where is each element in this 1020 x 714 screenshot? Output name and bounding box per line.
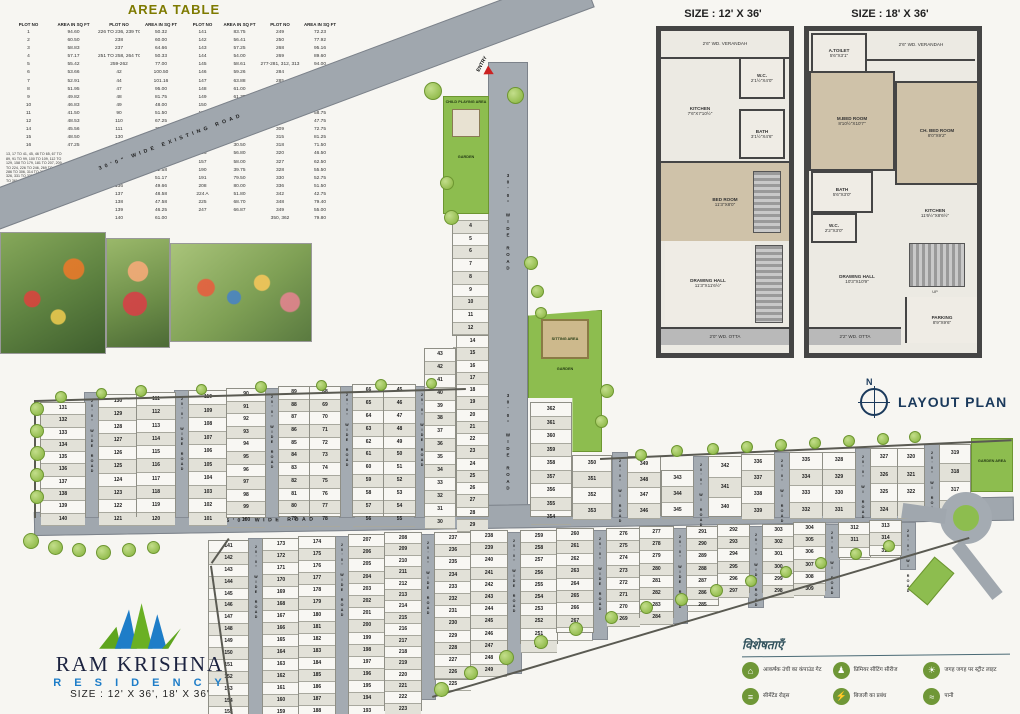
tree-icon — [30, 424, 44, 438]
plot-318: 318 — [940, 464, 970, 483]
road-label: 20'0" WIDE ROAD — [512, 539, 516, 614]
tree-icon — [426, 378, 437, 389]
plot-237: 237 — [435, 533, 471, 545]
plot-165: 165 — [263, 635, 299, 647]
plot-217: 217 — [385, 636, 421, 647]
plot-206: 206 — [349, 547, 385, 559]
plot-180: 180 — [299, 610, 335, 622]
plot-337: 337 — [742, 471, 774, 487]
plot-17: 17 — [457, 373, 488, 385]
plot-5: 5 — [453, 234, 488, 247]
legend-item-label: प्रिमियर सीटिंग सीरीज — [854, 667, 898, 673]
tree-icon — [424, 82, 442, 100]
plot-354: 354 — [531, 511, 571, 525]
plot-214: 214 — [385, 601, 421, 612]
road-label: 20'0" WI ROAD — [618, 459, 622, 524]
plot-19: 19 — [457, 397, 488, 409]
plot-7: 7 — [453, 259, 488, 272]
plot-305: 305 — [794, 535, 825, 547]
plot-74: 74 — [310, 463, 340, 476]
plot-345: 345 — [662, 503, 693, 519]
garden-label: GARDEN — [529, 367, 601, 372]
tree-icon — [850, 548, 862, 560]
plot-201: 201 — [349, 608, 385, 620]
plot-101: 101 — [189, 513, 227, 527]
plot-77: 77 — [310, 501, 340, 514]
plot-column: 238239240241242243244245246247248249 — [470, 530, 508, 666]
child-playing-area: CHILD PLAYING AREAGARDEN — [443, 96, 489, 214]
layout-brochure: AREA TABLE PLOT NOAREA IN SQ FT194.60260… — [0, 0, 1020, 714]
plot-51: 51 — [384, 462, 415, 475]
cross-road: 20'0" WI ROAD — [900, 522, 916, 570]
tree-icon — [635, 449, 647, 461]
plot-column: 2082092102112122132142152162172182192202… — [384, 532, 422, 711]
plot-24: 24 — [457, 459, 488, 471]
tree-icon — [464, 666, 478, 680]
cross-road: 20'0" WI ROAD — [693, 456, 709, 518]
plot-229: 229 — [435, 631, 471, 643]
legend-item: ☀जगह जगह पर स्ट्रीट लाइट — [923, 662, 1010, 679]
plot-188: 188 — [299, 706, 335, 714]
tree-icon — [809, 437, 821, 449]
plot-32: 32 — [425, 491, 455, 504]
plot-173: 173 — [263, 539, 299, 551]
plot-47: 47 — [384, 411, 415, 424]
plot-253: 253 — [521, 604, 557, 616]
tree-icon — [675, 593, 688, 606]
tree-icon — [440, 176, 454, 190]
plot-106: 106 — [189, 445, 227, 459]
plot-94: 94 — [227, 439, 265, 452]
plot-279: 279 — [640, 551, 673, 563]
plot-column: 130129128127126125124123122121 — [98, 394, 138, 517]
brand-block: RAM KRISHNA R E S I D E N C Y SIZE : 12'… — [40, 600, 240, 700]
plot-169: 169 — [263, 587, 299, 599]
plot-209: 209 — [385, 544, 421, 555]
tree-icon — [135, 385, 147, 397]
plot-58: 58 — [353, 488, 384, 501]
plot-column: 6665646362616059585756 — [352, 384, 385, 517]
plot-column: 111112113114115116117118119120 — [136, 392, 176, 517]
plot-128: 128 — [99, 421, 137, 434]
plot-97: 97 — [227, 477, 265, 490]
plot-6: 6 — [453, 246, 488, 259]
plot-185: 185 — [299, 670, 335, 682]
legend-item-label: पानी — [944, 693, 953, 699]
plot-325: 325 — [871, 484, 897, 502]
tree-icon — [909, 431, 921, 443]
plot-20: 20 — [457, 410, 488, 422]
plot-222: 222 — [385, 692, 421, 703]
tree-icon — [535, 307, 547, 319]
plot-99: 99 — [227, 502, 265, 515]
plot-25: 25 — [457, 471, 488, 483]
road-label: 20'0" WI ROAD — [780, 459, 784, 524]
tree-icon — [122, 543, 136, 557]
tree-icon — [600, 384, 614, 398]
plot-231: 231 — [435, 606, 471, 618]
plot-63: 63 — [353, 424, 384, 437]
brand-name: RAM KRISHNA — [40, 652, 240, 677]
plot-302: 302 — [763, 537, 794, 549]
plot-291: 291 — [687, 527, 718, 539]
plot-80: 80 — [279, 501, 309, 514]
plot-352: 352 — [573, 488, 611, 504]
plot-331: 331 — [823, 503, 855, 520]
tree-icon — [605, 611, 618, 624]
plot-344: 344 — [662, 487, 693, 503]
plot-30: 30 — [425, 517, 455, 530]
bench-icon: ♟ — [833, 662, 850, 679]
plot-84: 84 — [279, 450, 309, 463]
plot-52: 52 — [384, 475, 415, 488]
plot-280: 280 — [640, 564, 673, 576]
plot-column: 4546474849505152535455 — [383, 384, 416, 517]
plot-261: 261 — [557, 541, 593, 553]
plot-359: 359 — [531, 444, 571, 458]
plot-108: 108 — [189, 418, 227, 432]
plot-218: 218 — [385, 647, 421, 658]
plot-181: 181 — [299, 622, 335, 634]
tree-icon — [255, 381, 267, 393]
plot-361: 361 — [531, 417, 571, 431]
tree-icon — [72, 543, 86, 557]
legend-item: ⚡बिजली का प्रबंध — [833, 688, 920, 705]
plot-37: 37 — [425, 426, 455, 439]
plot-column: 336337338339 — [741, 454, 775, 517]
plot-141: 141 — [209, 541, 248, 553]
plot-127: 127 — [99, 434, 137, 447]
plot-column: 8988878685848382818079 — [278, 386, 310, 517]
tree-icon — [815, 557, 827, 569]
plot-133: 133 — [41, 428, 85, 440]
plot-87: 87 — [279, 412, 309, 425]
tree-icon — [745, 575, 757, 587]
plot-column: 328329330331 — [822, 452, 856, 516]
plot-256: 256 — [521, 568, 557, 580]
plot-119: 119 — [137, 499, 175, 512]
plot-43: 43 — [425, 349, 455, 362]
road-label: 20'0" WIDE ROAD — [254, 545, 258, 620]
plot-18: 18 — [457, 385, 488, 397]
plot-140: 140 — [41, 514, 85, 526]
plot-46: 46 — [384, 398, 415, 411]
plot-59: 59 — [353, 475, 384, 488]
tree-icon — [96, 545, 111, 560]
plot-330: 330 — [823, 486, 855, 503]
plot-21: 21 — [457, 422, 488, 434]
garden-area-label: GARDEN AREA — [972, 459, 1012, 464]
plot-313: 313 — [870, 521, 901, 533]
tree-icon — [707, 443, 719, 455]
plot-240: 240 — [471, 555, 507, 567]
plot-95: 95 — [227, 452, 265, 465]
plot-208: 208 — [385, 533, 421, 544]
plot-223: 223 — [385, 704, 421, 714]
plot-60: 60 — [353, 462, 384, 475]
plot-193: 193 — [349, 706, 385, 714]
plot-159: 159 — [263, 707, 299, 714]
plot-4: 4 — [453, 221, 488, 234]
plot-228: 228 — [435, 643, 471, 655]
plot-175: 175 — [299, 549, 335, 561]
plot-column: 2072062052042032022012001991981971961951… — [348, 534, 386, 714]
plot-50: 50 — [384, 449, 415, 462]
plot-252: 252 — [521, 616, 557, 628]
plot-205: 205 — [349, 559, 385, 571]
plot-170: 170 — [263, 575, 299, 587]
plot-122: 122 — [99, 500, 137, 513]
plot-62: 62 — [353, 437, 384, 450]
plot-220: 220 — [385, 670, 421, 681]
plot-320: 320 — [898, 449, 924, 467]
streetlight-icon: ☀ — [923, 662, 940, 679]
plot-333: 333 — [790, 486, 822, 503]
tree-icon — [741, 441, 753, 453]
plot-353: 353 — [573, 504, 611, 520]
plot-27: 27 — [457, 495, 488, 507]
plot-360: 360 — [531, 430, 571, 444]
plot-324: 324 — [871, 502, 897, 520]
plot-199: 199 — [349, 633, 385, 645]
cul-de-sac — [940, 492, 992, 544]
road-label: 20'0" WIDE ROAD — [754, 533, 758, 608]
tree-icon — [775, 439, 787, 451]
electricity-icon: ⚡ — [833, 688, 850, 705]
plot-98: 98 — [227, 490, 265, 503]
plot-311: 311 — [839, 535, 870, 547]
plot-329: 329 — [823, 470, 855, 487]
plot-213: 213 — [385, 590, 421, 601]
road-label: 20'0" WIDE ROAD — [180, 397, 184, 472]
legend-item: ♟प्रिमियर सीटिंग सीरीज — [833, 662, 920, 679]
tree-icon — [780, 566, 792, 578]
plot-138: 138 — [41, 489, 85, 501]
plot-38: 38 — [425, 413, 455, 426]
plot-326: 326 — [871, 467, 897, 485]
plot-75: 75 — [310, 476, 340, 489]
plot-16: 16 — [457, 361, 488, 373]
plot-277: 277 — [640, 527, 673, 539]
plot-235: 235 — [435, 557, 471, 569]
plot-289: 289 — [687, 551, 718, 563]
plot-155: 155 — [209, 707, 248, 714]
plot-339: 339 — [742, 504, 774, 520]
tree-icon — [877, 433, 889, 445]
road-label: 20'0" WI ROAD — [861, 455, 865, 520]
plot-233: 233 — [435, 582, 471, 594]
child-playing-label: CHILD PLAYING AREA — [444, 100, 488, 105]
plot-196: 196 — [349, 669, 385, 681]
existing-road-label: 30'0" WIDE EXISTING ROAD — [98, 112, 244, 171]
plot-340: 340 — [709, 498, 741, 519]
plot-271: 271 — [607, 590, 640, 602]
plot-76: 76 — [310, 489, 340, 502]
plot-255: 255 — [521, 580, 557, 592]
plot-26: 26 — [457, 483, 488, 495]
legend: विशेषताएँ ⌂आकर्षक उंची का कंपाउंड गेट♟प्… — [742, 636, 1010, 705]
brand-sizes: SIZE : 12' X 36', 18' X 36' — [40, 689, 240, 700]
plot-327: 327 — [871, 449, 897, 467]
plot-107: 107 — [189, 432, 227, 446]
plot-column: 350351352353 — [572, 455, 612, 517]
tree-icon — [524, 256, 538, 270]
plot-126: 126 — [99, 447, 137, 460]
tree-icon — [375, 379, 387, 391]
legend-item: ≈पानी — [923, 688, 1010, 705]
tree-icon — [534, 635, 548, 649]
plot-198: 198 — [349, 645, 385, 657]
plot-110: 110 — [189, 391, 227, 405]
plot-column: 237236235234233232231230229228227226225 — [434, 532, 472, 680]
plot-239: 239 — [471, 543, 507, 555]
sitting-area-label: SITTING AREA — [552, 337, 579, 342]
plot-263: 263 — [557, 566, 593, 578]
plot-9: 9 — [453, 285, 488, 298]
plot-303: 303 — [763, 525, 794, 537]
plot-114: 114 — [137, 433, 175, 446]
plot-203: 203 — [349, 584, 385, 596]
plot-215: 215 — [385, 613, 421, 624]
plot-336: 336 — [742, 455, 774, 471]
plot-187: 187 — [299, 694, 335, 706]
plot-166: 166 — [263, 623, 299, 635]
plot-304: 304 — [794, 523, 825, 535]
plot-column: 90919293949596979899100 — [226, 388, 266, 518]
plot-264: 264 — [557, 579, 593, 591]
legend-item-label: सीमेंटेड रोड्स — [763, 693, 789, 699]
brand-subtitle: R E S I D E N C Y — [40, 677, 240, 689]
plot-301: 301 — [763, 549, 794, 561]
plot-241: 241 — [471, 568, 507, 580]
tree-icon — [710, 584, 723, 597]
plot-254: 254 — [521, 592, 557, 604]
plot-125: 125 — [99, 460, 137, 473]
plot-204: 204 — [349, 572, 385, 584]
tree-icon — [671, 445, 683, 457]
plot-91: 91 — [227, 402, 265, 415]
plot-61: 61 — [353, 449, 384, 462]
tree-icon — [499, 650, 514, 665]
road-label: 20'0" WIDE ROAD — [598, 537, 602, 612]
plot-285: 285 — [687, 600, 718, 612]
plot-column: 110109108107106105104103102101 — [188, 390, 228, 517]
plot-column: 259258257256255254253252251250 — [520, 530, 558, 644]
plot-23: 23 — [457, 446, 488, 458]
plot-136: 136 — [41, 464, 85, 476]
plot-259: 259 — [521, 531, 557, 543]
plot-54: 54 — [384, 501, 415, 514]
plot-362: 362 — [531, 403, 571, 417]
plot-278: 278 — [640, 539, 673, 551]
plot-79: 79 — [279, 514, 309, 527]
plot-81: 81 — [279, 489, 309, 502]
plot-72: 72 — [310, 438, 340, 451]
tree-icon — [30, 490, 44, 504]
tree-icon — [883, 540, 895, 552]
plot-272: 272 — [607, 578, 640, 590]
plot-56: 56 — [353, 514, 384, 527]
tree-icon — [96, 388, 107, 399]
tree-icon — [569, 622, 583, 636]
plot-column: 327326325324 — [870, 448, 898, 516]
plot-227: 227 — [435, 655, 471, 667]
plot-276: 276 — [607, 529, 640, 541]
plot-64: 64 — [353, 411, 384, 424]
legend-items: ⌂आकर्षक उंची का कंपाउंड गेट♟प्रिमियर सीट… — [742, 662, 1010, 705]
plot-355: 355 — [531, 498, 571, 512]
plot-356: 356 — [531, 484, 571, 498]
legend-item-label: आकर्षक उंची का कंपाउंड गेट — [763, 667, 822, 673]
plot-236: 236 — [435, 545, 471, 557]
tree-icon — [507, 87, 524, 104]
tree-icon — [640, 601, 653, 614]
plot-171: 171 — [263, 563, 299, 575]
plot-92: 92 — [227, 414, 265, 427]
plot-195: 195 — [349, 681, 385, 693]
road-label: 30'0" WIDE ROAD — [506, 393, 511, 492]
plot-174: 174 — [299, 537, 335, 549]
plot-31: 31 — [425, 504, 455, 517]
road-label: 20'0" WIDE ROAD — [270, 395, 274, 470]
plot-164: 164 — [263, 647, 299, 659]
plot-246: 246 — [471, 629, 507, 641]
plot-118: 118 — [137, 486, 175, 499]
water-icon: ≈ — [923, 688, 940, 705]
plot-210: 210 — [385, 556, 421, 567]
plot-column: 260261262263264265266267268 — [556, 528, 594, 633]
plot-12: 12 — [453, 323, 488, 336]
plot-82: 82 — [279, 476, 309, 489]
plot-282: 282 — [640, 588, 673, 600]
plot-132: 132 — [41, 415, 85, 427]
plot-167: 167 — [263, 611, 299, 623]
plot-322: 322 — [898, 484, 924, 502]
plot-86: 86 — [279, 425, 309, 438]
plot-341: 341 — [709, 478, 741, 499]
plot-319: 319 — [940, 445, 970, 464]
plot-292: 292 — [718, 525, 749, 537]
plot-346: 346 — [628, 504, 660, 520]
plot-120: 120 — [137, 513, 175, 526]
plot-288: 288 — [687, 564, 718, 576]
plot-column: 303302301300299298 — [762, 524, 795, 593]
plot-183: 183 — [299, 646, 335, 658]
plot-column: 349348347346 — [627, 456, 661, 516]
plot-121: 121 — [99, 513, 137, 526]
tree-icon — [444, 210, 459, 225]
plot-35: 35 — [425, 452, 455, 465]
plot-194: 194 — [349, 693, 385, 705]
plot-160: 160 — [263, 695, 299, 707]
plot-70: 70 — [310, 412, 340, 425]
main-vertical-road: 30'0" WIDE ROAD30'0" WIDE ROAD — [488, 62, 528, 526]
plot-245: 245 — [471, 616, 507, 628]
plot-10: 10 — [453, 297, 488, 310]
plot-8: 8 — [453, 272, 488, 285]
plot-293: 293 — [718, 537, 749, 549]
plot-42: 42 — [425, 362, 455, 375]
tree-icon — [531, 285, 544, 298]
plot-168: 168 — [263, 599, 299, 611]
plot-93: 93 — [227, 427, 265, 440]
plot-102: 102 — [189, 499, 227, 513]
tree-icon — [196, 384, 207, 395]
plot-242: 242 — [471, 580, 507, 592]
plot-163: 163 — [263, 659, 299, 671]
plot-131: 131 — [41, 403, 85, 415]
road-label: 20'0" WIDE ROAD — [345, 393, 349, 468]
